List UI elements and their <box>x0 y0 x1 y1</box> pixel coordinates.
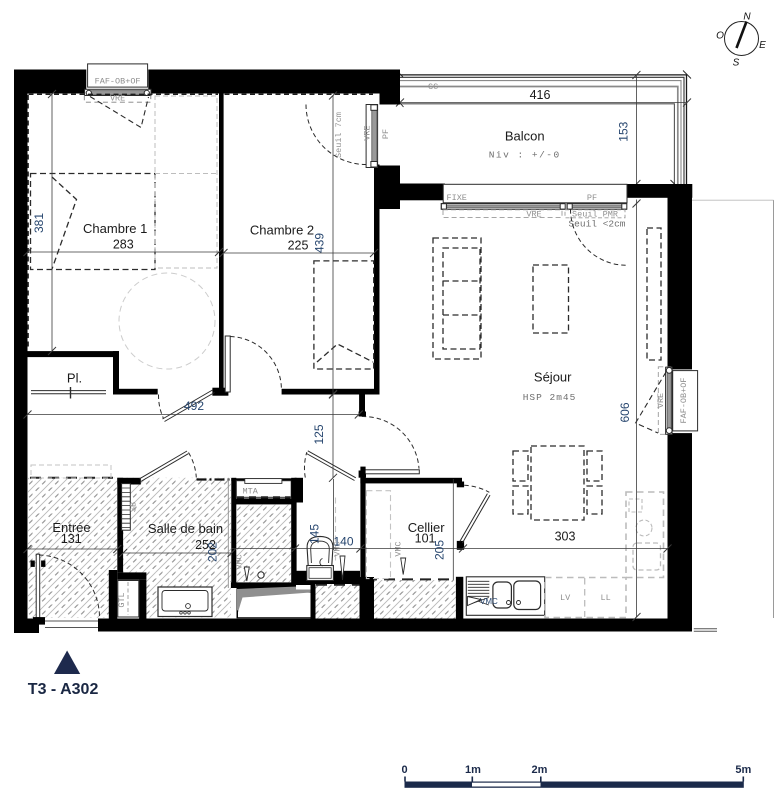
svg-text:SB: SB <box>129 502 139 512</box>
svg-text:283: 283 <box>113 238 134 252</box>
svg-text:GTL: GTL <box>117 592 127 607</box>
svg-text:Seuil <2cm: Seuil <2cm <box>568 219 625 230</box>
svg-text:VMC: VMC <box>235 554 245 569</box>
svg-text:381: 381 <box>32 213 46 233</box>
svg-text:140: 140 <box>333 535 353 549</box>
svg-text:2m: 2m <box>532 764 548 776</box>
svg-text:LV: LV <box>560 593 571 603</box>
svg-text:416: 416 <box>530 88 551 102</box>
svg-text:Salle de bain: Salle de bain <box>148 521 223 536</box>
svg-text:303: 303 <box>555 530 576 544</box>
svg-text:Chambre 1: Chambre 1 <box>83 221 147 236</box>
svg-text:N: N <box>743 12 751 23</box>
svg-text:VRE: VRE <box>526 209 541 219</box>
svg-text:FIXE: FIXE <box>447 193 467 203</box>
svg-text:Balcon: Balcon <box>505 129 545 144</box>
svg-text:492: 492 <box>184 399 204 413</box>
svg-text:VRE: VRE <box>656 393 666 408</box>
svg-text:0: 0 <box>401 764 407 776</box>
svg-text:LL: LL <box>601 593 611 603</box>
svg-text:T3 - A302: T3 - A302 <box>28 681 99 698</box>
svg-text:VRE: VRE <box>362 125 372 140</box>
svg-text:131: 131 <box>61 532 82 546</box>
svg-text:GC: GC <box>428 82 438 92</box>
svg-text:MTA: MTA <box>243 487 259 497</box>
svg-text:O: O <box>716 31 724 42</box>
svg-text:VMC: VMC <box>480 597 498 606</box>
svg-text:439: 439 <box>313 233 327 253</box>
svg-text:225: 225 <box>288 239 309 253</box>
svg-text:5m: 5m <box>735 764 751 776</box>
svg-text:205: 205 <box>432 540 446 560</box>
svg-text:Chambre 2: Chambre 2 <box>250 223 314 238</box>
svg-text:153: 153 <box>617 121 631 141</box>
svg-text:FAF-OB+OF: FAF-OB+OF <box>679 378 689 424</box>
svg-text:HSP 2m45: HSP 2m45 <box>523 392 577 403</box>
svg-text:Niv : +/-0: Niv : +/-0 <box>489 150 561 161</box>
svg-text:145: 145 <box>308 524 322 544</box>
svg-text:E: E <box>759 40 766 51</box>
svg-text:VRE: VRE <box>110 94 125 104</box>
svg-text:Pl.: Pl. <box>67 371 82 386</box>
svg-text:FAF-OB+OF: FAF-OB+OF <box>95 77 141 87</box>
svg-text:125: 125 <box>312 424 326 444</box>
svg-text:S: S <box>733 58 740 69</box>
svg-text:VMC: VMC <box>394 541 404 556</box>
svg-text:1m: 1m <box>465 764 481 776</box>
svg-text:PF: PF <box>381 129 391 139</box>
svg-text:PF: PF <box>587 193 597 203</box>
svg-text:Seuil 7cm: Seuil 7cm <box>334 112 344 158</box>
svg-text:Séjour: Séjour <box>534 370 572 385</box>
svg-text:606: 606 <box>618 402 632 422</box>
svg-text:202: 202 <box>206 542 220 562</box>
